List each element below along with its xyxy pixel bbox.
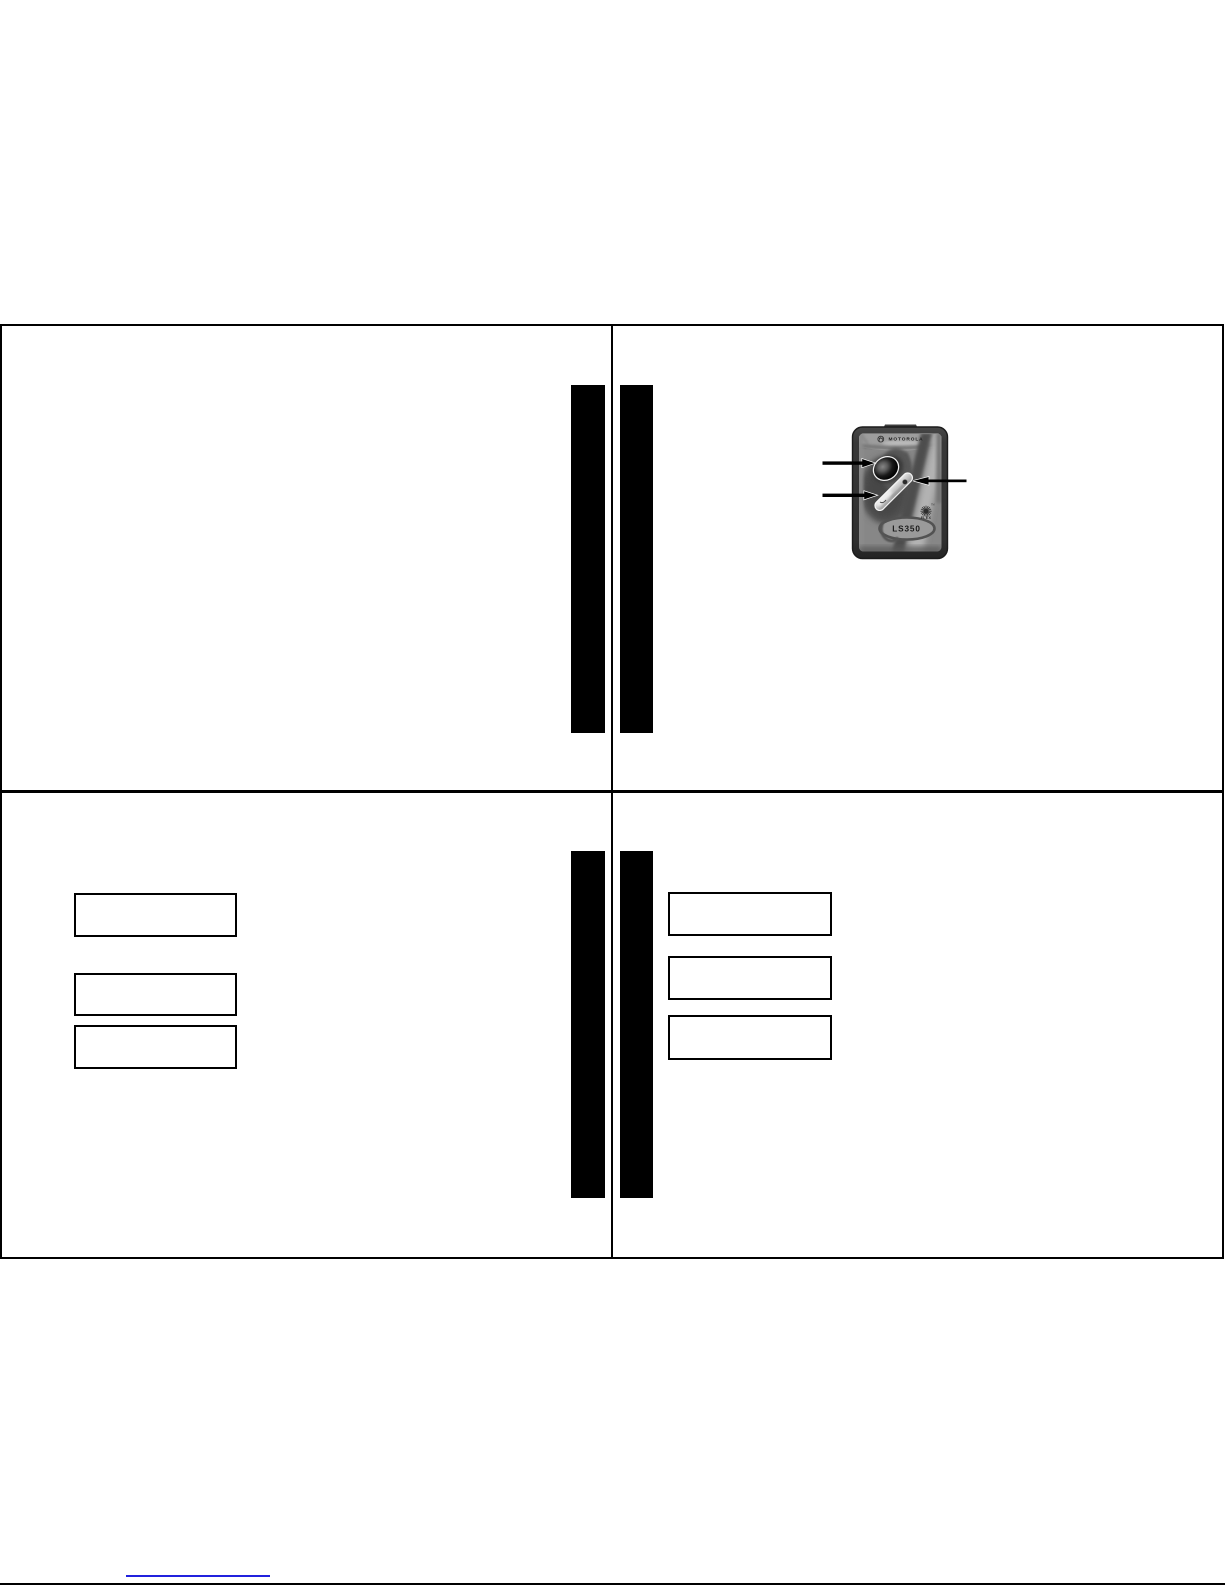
svg-text:TM: TM xyxy=(931,504,934,507)
svg-text:FLEX: FLEX xyxy=(921,516,932,520)
svg-text:LS350: LS350 xyxy=(892,524,921,533)
svg-text:MOTOROLA: MOTOROLA xyxy=(888,437,923,443)
